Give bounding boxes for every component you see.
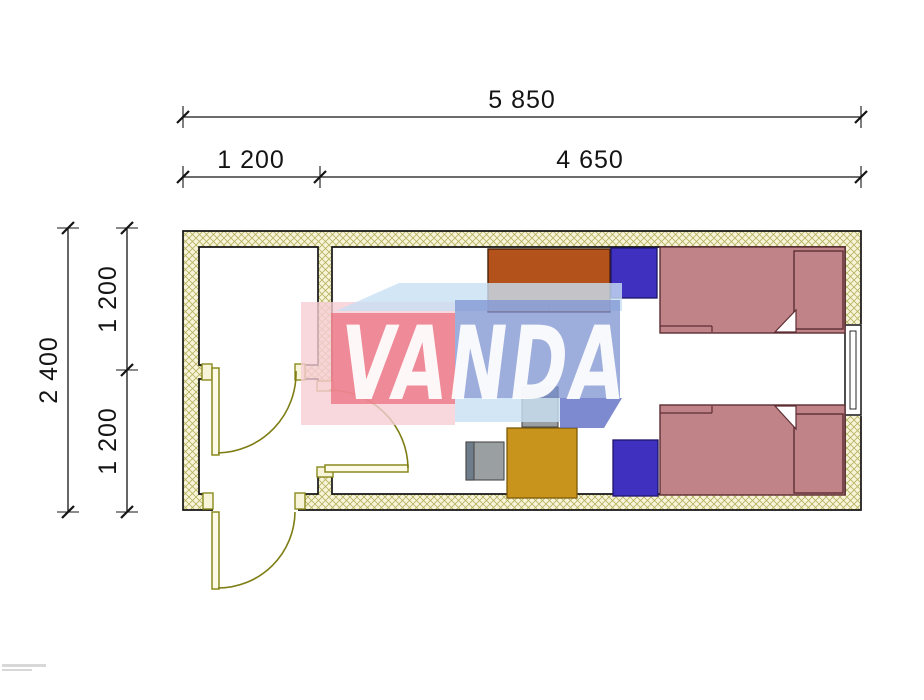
pillow-top [794,251,843,329]
entry-door-interior [212,368,296,455]
floor-plan-canvas: VANDA 5 850 1 200 4 650 2 400 [0,0,924,700]
desk [507,428,577,498]
dim-label-depth-upper: 1 200 [94,265,122,333]
fine-print-smudge [2,664,46,671]
bed-bottom [660,405,845,495]
dimension-top-split: 1 200 4 650 [177,146,867,188]
bed-top [660,247,845,333]
dim-label-room-width: 4 650 [556,146,624,174]
dimension-left-total: 2 400 [35,222,79,518]
window [845,325,861,415]
dimension-left-split: 1 200 1 200 [94,222,138,518]
dim-label-entry-width: 1 200 [217,146,285,174]
opening-entry-partition [211,363,296,381]
chair-left [466,442,504,480]
watermark-text: VANDA [334,305,634,424]
nightstand-bottom [613,440,658,496]
floor-plan-page: VANDA 5 850 1 200 4 650 2 400 [0,0,924,700]
pillow-bottom [794,414,843,493]
opening-exterior-door [213,492,298,512]
dim-label-total-width: 5 850 [488,86,556,114]
dimension-top-total: 5 850 [177,86,867,128]
entry-door-exterior [212,512,295,589]
dim-label-depth-lower: 1 200 [94,407,122,475]
dim-label-total-depth: 2 400 [35,336,63,404]
brand-watermark: VANDA [301,283,634,428]
